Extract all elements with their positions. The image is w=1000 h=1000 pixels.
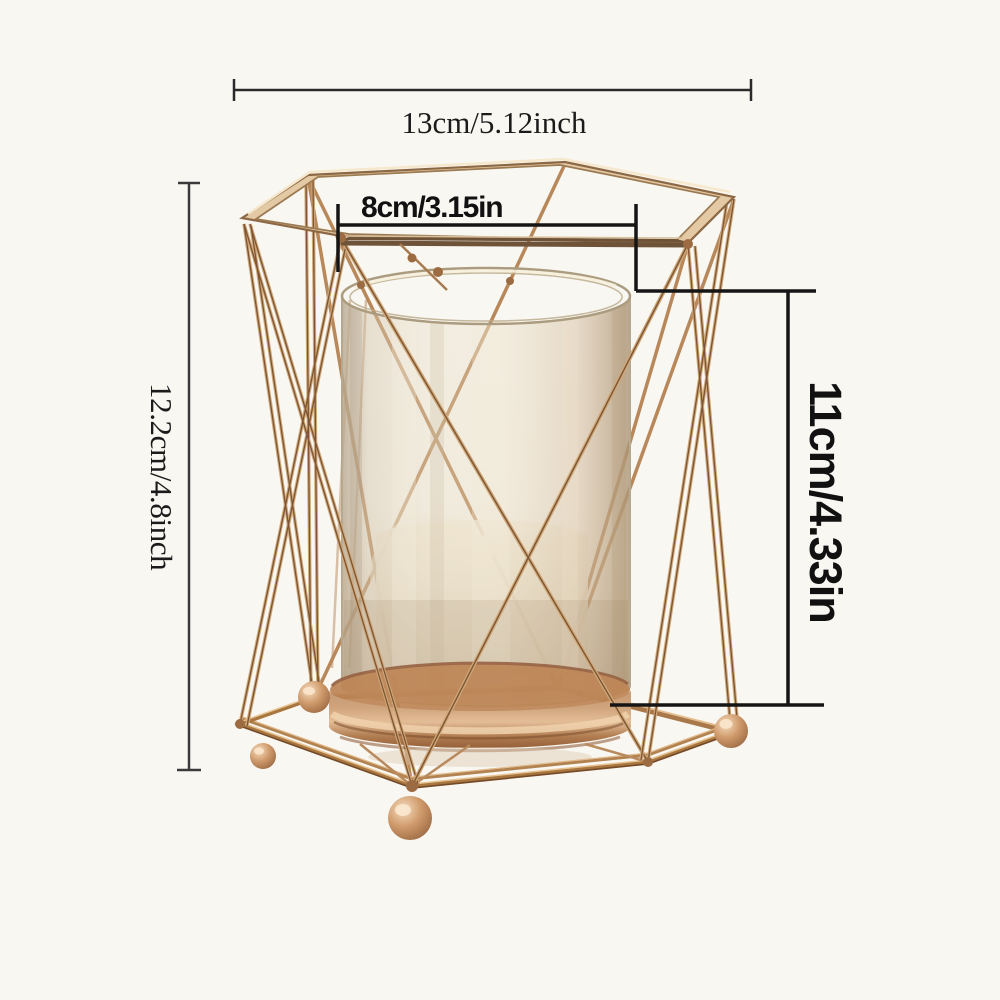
svg-text:12.2cm/4.8inch: 12.2cm/4.8inch	[144, 383, 179, 571]
svg-text:8cm/3.15in: 8cm/3.15in	[361, 191, 502, 224]
svg-text:11cm/4.33in: 11cm/4.33in	[800, 381, 851, 623]
svg-text:13cm/5.12inch: 13cm/5.12inch	[401, 105, 587, 140]
